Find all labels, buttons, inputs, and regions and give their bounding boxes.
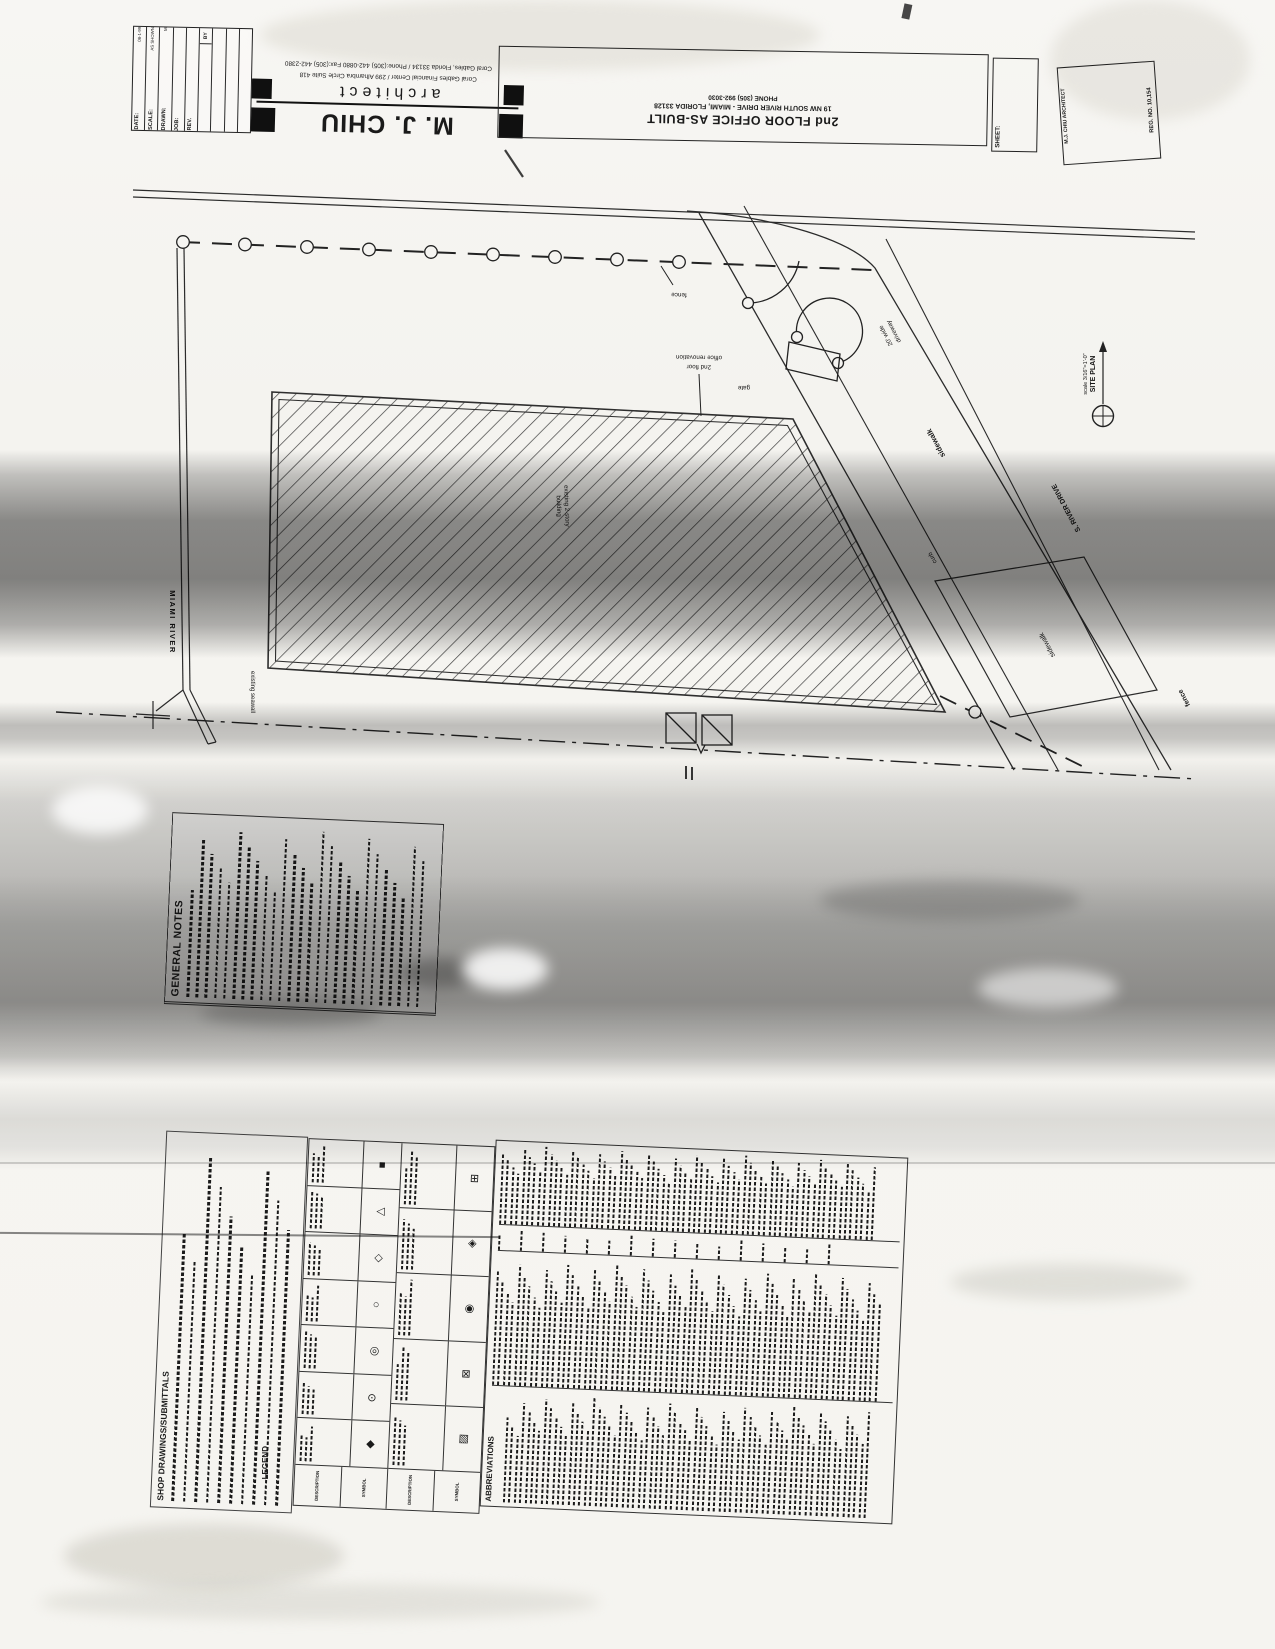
date-label: DATE: [135, 111, 141, 130]
redacted-text-line [310, 1297, 313, 1322]
redacted-text-line [874, 1304, 880, 1401]
redacted-text-line [642, 1407, 648, 1508]
redacted-text-line [311, 1389, 314, 1415]
redacted-text-line [541, 1232, 544, 1251]
redacted-text-line [569, 1150, 574, 1226]
redacted-text-line [784, 1179, 788, 1236]
seal-architect-name: M.J. CHIU ARCHITECT [1061, 88, 1070, 144]
redacted-text-line [535, 1308, 540, 1387]
abbreviations-title: ABBREVIATIONS [483, 1435, 495, 1501]
redacted-text-line [552, 1160, 557, 1226]
project-address: 19 NW SOUTH RIVER DRIVE - MIAMI, FLORIDA… [654, 101, 832, 111]
redacted-text-line [852, 1310, 858, 1400]
gate-label: gate [737, 384, 750, 391]
redacted-text-line [567, 1403, 573, 1505]
redacted-text-line [725, 1165, 730, 1233]
redacted-text-line [847, 1299, 853, 1400]
general-notes-panel: GENERAL NOTES [168, 818, 440, 1010]
redacted-text-line [782, 1316, 788, 1397]
drawn-label: DRAWN: [162, 105, 168, 130]
redacted-text-line [863, 1411, 870, 1517]
scale-label: SCALE: [148, 107, 154, 130]
redacted-text-line [676, 1165, 681, 1231]
redacted-text-line [746, 1162, 751, 1234]
redacted-text-line [793, 1416, 799, 1515]
redacted-text-line [696, 1290, 703, 1393]
redacted-text-line [615, 1403, 622, 1507]
redacted-text-line [402, 1425, 406, 1465]
redacted-text-line [633, 1171, 638, 1229]
redacted-text-line [413, 1156, 417, 1205]
redacted-text-line [800, 1169, 805, 1236]
redacted-text-line [626, 1421, 632, 1507]
redacted-text-line [687, 1178, 691, 1231]
redacted-text-line [806, 1176, 811, 1237]
redacted-text-line [673, 1240, 676, 1257]
redacted-text-line [605, 1426, 611, 1507]
redacted-text-line [637, 1439, 642, 1507]
redacted-text-line [648, 1416, 654, 1508]
plan-title: SITE PLAN [1090, 356, 1097, 393]
redacted-text-line [551, 1291, 557, 1387]
redacted-text-line [858, 1320, 863, 1400]
redacted-text-line [388, 883, 396, 1006]
redacted-text-line [658, 1312, 663, 1392]
redacted-text-line [809, 1444, 814, 1516]
redacted-text-line [499, 1153, 504, 1224]
redacted-text-line [379, 868, 388, 1005]
redacted-text-line [659, 1435, 664, 1509]
redacted-text-line [773, 1166, 778, 1236]
architect-seal-box: M.J. CHIU ARCHITECT REG. NO. 10,154 [1057, 61, 1162, 166]
redacted-text-line [827, 1243, 830, 1264]
redacted-text-line [735, 1179, 739, 1234]
legend-description [399, 1143, 457, 1210]
redacted-text-line [660, 1175, 664, 1231]
redacted-text-line [772, 1294, 778, 1396]
description-header: DESCRIPTION [293, 1465, 341, 1507]
redacted-text-line [626, 1296, 632, 1390]
black-square-icon [252, 78, 273, 99]
seawall-label: existing seawall [249, 671, 255, 713]
redacted-text-line [707, 1311, 713, 1394]
redacted-text-line [315, 1286, 319, 1322]
sidewalk-upper-label: sidewalk [924, 427, 947, 460]
redacted-text-line [303, 1331, 307, 1368]
redacted-text-line [306, 1386, 309, 1415]
redacted-text-line [601, 1161, 606, 1228]
redacted-text-line [502, 1292, 508, 1385]
by-cell: BY [200, 28, 213, 44]
redacted-text-line [260, 876, 268, 1001]
renovation-label-leader [699, 374, 701, 416]
redacted-text-line [311, 1153, 314, 1182]
renovation-label: 2nd floor office renovation [675, 353, 722, 370]
redacted-text-line [572, 1286, 578, 1388]
redacted-text-line [734, 1316, 739, 1395]
redacted-text-line [799, 1425, 805, 1515]
redacted-text-line [585, 1238, 588, 1254]
redacted-text-line [836, 1448, 841, 1516]
redacted-text-line [410, 1229, 414, 1270]
redacted-text-line [606, 1167, 611, 1228]
fence-southeast-label: fence [1177, 688, 1192, 708]
redacted-text-line [622, 1158, 627, 1229]
redacted-text-line [562, 1435, 567, 1504]
redacted-text-line [251, 861, 260, 1000]
redacted-text-line [556, 1426, 561, 1504]
redacted-text-line [610, 1435, 615, 1507]
redacted-text-line [275, 1230, 290, 1506]
redacted-text-line [299, 1434, 302, 1461]
river-centerline [56, 712, 1196, 779]
circle-target-marker-icon: ◉ [462, 1304, 475, 1314]
redacted-text-line [702, 1425, 708, 1510]
legend-description [391, 1339, 449, 1406]
redacted-text-line [278, 839, 288, 1001]
square-x-marker-icon: ⊠ [459, 1369, 472, 1379]
redacted-text-line [768, 1159, 773, 1235]
abbreviations-panel: ABBREVIATIONS [487, 1148, 900, 1515]
redacted-text-line [870, 1167, 875, 1240]
svg-text:2nd floor: 2nd floor [687, 363, 712, 370]
redacted-text-line [504, 1160, 509, 1224]
redacted-text-line [408, 1280, 412, 1335]
redacted-text-line [416, 861, 425, 1007]
redacted-text-line [547, 1153, 552, 1225]
redacted-text-line [702, 1300, 708, 1393]
job-label: JOB: [175, 115, 181, 130]
redacted-text-line [241, 846, 250, 999]
legend-description [307, 1139, 364, 1187]
sheet-number-box: SHEET: [991, 58, 1039, 153]
redacted-text-line [578, 1421, 584, 1505]
redacted-text-line [739, 1240, 742, 1260]
legend-band: DESCRIPTION SYMBOL ◆ ⊙ ◎ ○ ◇ △ ■ [293, 1139, 402, 1509]
redacted-text-line [558, 1167, 563, 1226]
redacted-text-line [629, 1235, 632, 1255]
square-grid-marker-icon: ⊞ [467, 1174, 480, 1184]
redacted-text-line [756, 1435, 761, 1513]
redacted-text-line [605, 1301, 611, 1389]
legend-description [388, 1404, 446, 1471]
square-hatched-marker-icon: ▨ [456, 1434, 469, 1445]
redacted-text-line [816, 1159, 821, 1237]
redacted-text-line [795, 1163, 800, 1237]
redacted-text-line [865, 1190, 869, 1239]
redacted-text-line [692, 1155, 697, 1232]
project-title: 2nd FLOOR OFFICE AS-BUILT [647, 111, 839, 128]
redacted-text-line [680, 1306, 686, 1392]
redacted-text-line [599, 1417, 605, 1507]
legend-description [297, 1372, 354, 1420]
redacted-text-line [195, 839, 205, 997]
fence-post-icon [969, 706, 981, 718]
redacted-text-line [301, 1382, 304, 1414]
redacted-text-line [572, 1412, 578, 1505]
redacted-text-line [612, 1174, 616, 1228]
redacted-text-line [529, 1297, 535, 1386]
redacted-text-line [696, 1416, 702, 1510]
redacted-text-line [849, 1170, 854, 1239]
redacted-text-line [519, 1229, 522, 1250]
redacted-text-line [595, 1154, 600, 1228]
redacted-text-line [186, 890, 193, 997]
redacted-text-line [403, 1297, 407, 1335]
symbol-header: SYMBOL [432, 1471, 479, 1513]
redacted-text-line [843, 1163, 848, 1238]
firm-role: architect [335, 82, 441, 103]
scanned-architectural-sheet: existing 2-story building [0, 0, 1275, 1649]
redacted-text-line [594, 1407, 600, 1506]
circle-double-marker-icon: ◎ [367, 1346, 380, 1356]
redacted-text-line [590, 1177, 594, 1227]
driveway-label: 20' wide driveway [877, 318, 903, 348]
redacted-text-line [644, 1154, 649, 1229]
description-header: DESCRIPTION [386, 1469, 434, 1511]
redacted-text-line [513, 1435, 518, 1502]
legend-description [299, 1325, 356, 1373]
project-phone: PHONE (305) 992-3030 [708, 93, 777, 101]
redacted-text-line [709, 1175, 714, 1232]
redacted-text-line [859, 1183, 863, 1239]
legend-description [301, 1279, 358, 1327]
abbreviations-column [498, 1141, 902, 1241]
redacted-text-line [719, 1158, 724, 1233]
redacted-text-line [400, 1348, 404, 1400]
redacted-text-line [858, 1444, 863, 1518]
diamond-outline-marker-icon: ◇ [371, 1254, 384, 1263]
redacted-text-line [671, 1158, 676, 1231]
redacted-text-line [497, 1281, 504, 1384]
redacted-text-line [579, 1164, 584, 1227]
diamond-inset-marker-icon: ◈ [465, 1239, 478, 1248]
redacted-text-line [241, 1275, 254, 1504]
redacted-text-line [651, 1238, 654, 1257]
redacted-text-line [665, 1182, 669, 1231]
redacted-text-line [313, 1338, 316, 1369]
redacted-text-line [712, 1444, 717, 1511]
by-label: BY [204, 32, 209, 39]
redacted-text-line [308, 1334, 311, 1368]
svg-text:office renovation: office renovation [675, 353, 722, 361]
redacted-text-line [734, 1439, 739, 1512]
redacted-text-line [718, 1412, 724, 1512]
redacted-text-line [831, 1439, 836, 1516]
street-name-label: S. RIVER DRIVE [1051, 482, 1082, 533]
redacted-text-line [675, 1421, 681, 1509]
redacted-text-line [314, 1194, 318, 1229]
redacted-text-line [617, 1151, 622, 1229]
redacted-text-line [777, 1305, 783, 1397]
redacted-text-line [342, 876, 350, 1004]
elevation-marker-squares [666, 713, 732, 780]
redacted-text-line [408, 1151, 412, 1205]
redacted-text-line [515, 1173, 519, 1224]
redacted-text-line [319, 1197, 322, 1229]
redacted-text-line [405, 1353, 409, 1401]
redacted-text-line [370, 854, 379, 1005]
circle-outline-marker-icon: ○ [369, 1301, 381, 1308]
redacted-text-line [822, 1166, 827, 1237]
redacted-text-line [497, 1235, 500, 1250]
redacted-text-line [755, 1311, 761, 1396]
redacted-text-line [315, 832, 325, 1003]
redacted-text-line [707, 1435, 712, 1511]
redacted-text-line [752, 1169, 757, 1235]
redacted-text-line [545, 1407, 551, 1503]
redacted-text-line [397, 898, 404, 1007]
redacted-text-line [838, 1187, 842, 1239]
redacted-text-line [309, 1190, 313, 1228]
redacted-text-line [703, 1168, 708, 1232]
redacted-text-line [351, 890, 359, 1004]
redacted-text-line [728, 1306, 734, 1395]
scale-value: AS SHOWN [151, 27, 156, 52]
redacted-text-line [854, 1177, 859, 1239]
redacted-text-line [407, 847, 417, 1007]
redacted-text-line [741, 1155, 746, 1234]
redacted-text-line [395, 1364, 399, 1400]
redacted-text-line [563, 1174, 567, 1227]
redacted-text-line [574, 1157, 579, 1227]
redacted-text-line [392, 1416, 396, 1466]
drawn-value: M [164, 27, 168, 33]
redacted-text-line [762, 1182, 766, 1235]
redacted-text-line [563, 1235, 566, 1252]
redacted-text-line [639, 1178, 643, 1230]
redacted-text-line [269, 890, 276, 1000]
redacted-text-line [782, 1439, 787, 1514]
redacted-text-line [842, 1416, 848, 1517]
redacted-text-line [405, 1224, 409, 1270]
redacted-text-line [757, 1176, 762, 1235]
redacted-text-line [723, 1421, 729, 1512]
ink-speck [901, 3, 912, 19]
redacted-text-line [815, 1411, 822, 1515]
date-value: 08-1-99 [138, 27, 143, 44]
redacted-text-line [798, 1299, 804, 1397]
legend-description [305, 1186, 362, 1234]
redacted-text-line [599, 1291, 605, 1389]
redacted-text-line [827, 1173, 832, 1238]
redacted-text-line [304, 1438, 307, 1462]
redacted-text-line [852, 1434, 858, 1517]
redacted-text-line [403, 1168, 407, 1205]
redacted-text-line [317, 1249, 320, 1276]
revision-table: 08-1-99 DATE: AS SHOWN SCALE: M DRAWN: J… [131, 26, 253, 133]
redacted-text-line [307, 1242, 310, 1275]
legend-description [303, 1232, 360, 1280]
redacted-text-line [232, 832, 242, 999]
redacted-text-line [675, 1295, 681, 1392]
general-notes-title: GENERAL NOTES [169, 818, 189, 996]
ink-speck [505, 150, 523, 177]
general-notes-text [186, 819, 426, 1007]
redacted-text-line [525, 1157, 530, 1225]
redacted-text-line [831, 1315, 837, 1399]
redacted-text-line [632, 1430, 637, 1507]
svg-text:building: building [555, 495, 563, 517]
redacted-text-line [321, 1145, 325, 1182]
fence-post-icons [177, 236, 686, 269]
redacted-text-line [691, 1407, 697, 1510]
svg-text:existing 2-story: existing 2-story [562, 485, 570, 528]
redacted-text-line [585, 1171, 589, 1228]
gate-swing-arc-2 [796, 298, 862, 363]
legend-panel: DESCRIPTION SYMBOL ◆ ⊙ ◎ ○ ◇ △ ■ DESCRIP… [300, 1142, 487, 1510]
fence-label: fence [671, 291, 687, 298]
redacted-text-line [632, 1307, 638, 1391]
rev-label: REV. [188, 116, 194, 131]
diamond-solid-marker-icon: ◆ [363, 1440, 376, 1449]
redacted-text-line [296, 868, 304, 1001]
redacted-text-line [750, 1425, 756, 1512]
redacted-text-line [205, 854, 214, 998]
fence-line [180, 242, 872, 270]
redacted-text-line [832, 1180, 837, 1238]
redacted-text-line [508, 1303, 514, 1386]
sheet-label: SHEET: [995, 126, 1002, 148]
redacted-text-line [811, 1183, 815, 1237]
legend-description [393, 1273, 451, 1340]
symbol-header: SYMBOL [340, 1467, 387, 1509]
redacted-text-line [502, 1417, 508, 1502]
rev-col-empty [238, 29, 252, 132]
redacted-text-line [583, 1307, 589, 1388]
square-solid-marker-icon: ■ [375, 1161, 387, 1168]
redacted-text-line [825, 1305, 831, 1399]
redacted-text-line [714, 1182, 718, 1233]
redacted-text-line [324, 846, 333, 1003]
redacted-text-line [717, 1246, 720, 1259]
redacted-text-line [745, 1416, 751, 1512]
redacted-text-line [777, 1430, 783, 1514]
redacted-text-line [682, 1172, 687, 1232]
redacted-text-line [761, 1243, 764, 1261]
abbreviations-column [502, 1390, 892, 1519]
redacted-text-line [536, 1170, 540, 1225]
redacted-text-line [519, 1403, 525, 1503]
architect-firm-block: M. J. CHIU architect Coral Gables Financ… [251, 26, 526, 141]
redacted-text-line [542, 1147, 547, 1226]
legend-description [295, 1418, 352, 1466]
redacted-text-line [847, 1425, 853, 1517]
miami-river-label: MIAMI RIVER [168, 590, 177, 654]
redacted-text-line [621, 1412, 627, 1507]
redacted-text-line [783, 1246, 786, 1262]
redacted-text-line [723, 1295, 729, 1395]
street-edge-lines [133, 190, 1195, 239]
redacted-text-line [305, 1294, 308, 1322]
redacted-text-line [400, 1219, 404, 1270]
building-footprint [268, 392, 945, 712]
redacted-text-line [698, 1162, 703, 1233]
legend-title: LEGEND [262, 1446, 270, 1479]
redacted-text-line [805, 1249, 808, 1263]
fence-label-leader [661, 266, 673, 285]
redacted-text-line [524, 1412, 530, 1503]
plan-scale: scale 3/16"=1'-0" [1083, 353, 1089, 394]
seal-registration-number: REG. NO. 10,154 [1148, 87, 1157, 133]
redacted-text-line [695, 1243, 698, 1258]
redacted-text-line [804, 1310, 810, 1398]
redacted-text-line [214, 868, 222, 998]
redacted-text-line [772, 1421, 778, 1514]
redacted-text-line [306, 883, 314, 1002]
redacted-text-line [653, 1301, 659, 1391]
redacted-text-line [649, 1161, 654, 1230]
